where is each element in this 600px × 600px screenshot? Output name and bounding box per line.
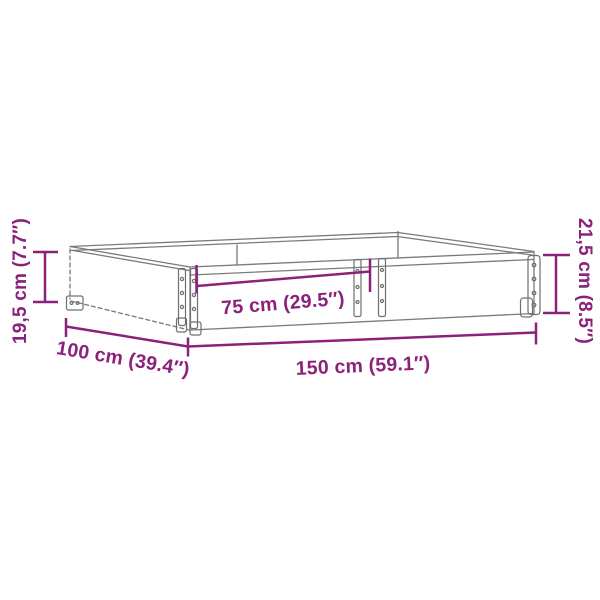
left-panel-top-inner-edge <box>73 251 189 271</box>
diagram-canvas: 19,5 cm (7.7″) 21,5 cm (8.5″) 75 cm (29.… <box>0 0 600 600</box>
dimension-labels: 19,5 cm (7.7″) 21,5 cm (8.5″) 75 cm (29.… <box>10 218 595 381</box>
front-right-hinge <box>521 256 541 318</box>
left-panel-top-edge <box>70 247 190 268</box>
left-panel-bottom-edge-hidden <box>71 301 189 330</box>
back-rim-inner-edge <box>71 237 532 256</box>
collar-drawing <box>70 232 534 331</box>
back-rim-outer-edge <box>70 233 534 252</box>
dim-label-height-right: 21,5 cm (8.5″) <box>574 218 595 344</box>
dim-label-length: 150 cm (59.1″) <box>295 352 430 380</box>
dim-label-height-left: 19,5 cm (7.7″) <box>10 218 31 344</box>
dim-label-half-length: 75 cm (29.5″) <box>221 288 346 320</box>
dim-line-height-right <box>543 255 570 313</box>
front-panel-top-edge <box>190 252 534 267</box>
pallet-collar-dimension-diagram: 19,5 cm (7.7″) 21,5 cm (8.5″) 75 cm (29.… <box>0 0 600 600</box>
dim-line-height-left <box>33 252 58 302</box>
dim-line-half-length <box>197 259 371 294</box>
